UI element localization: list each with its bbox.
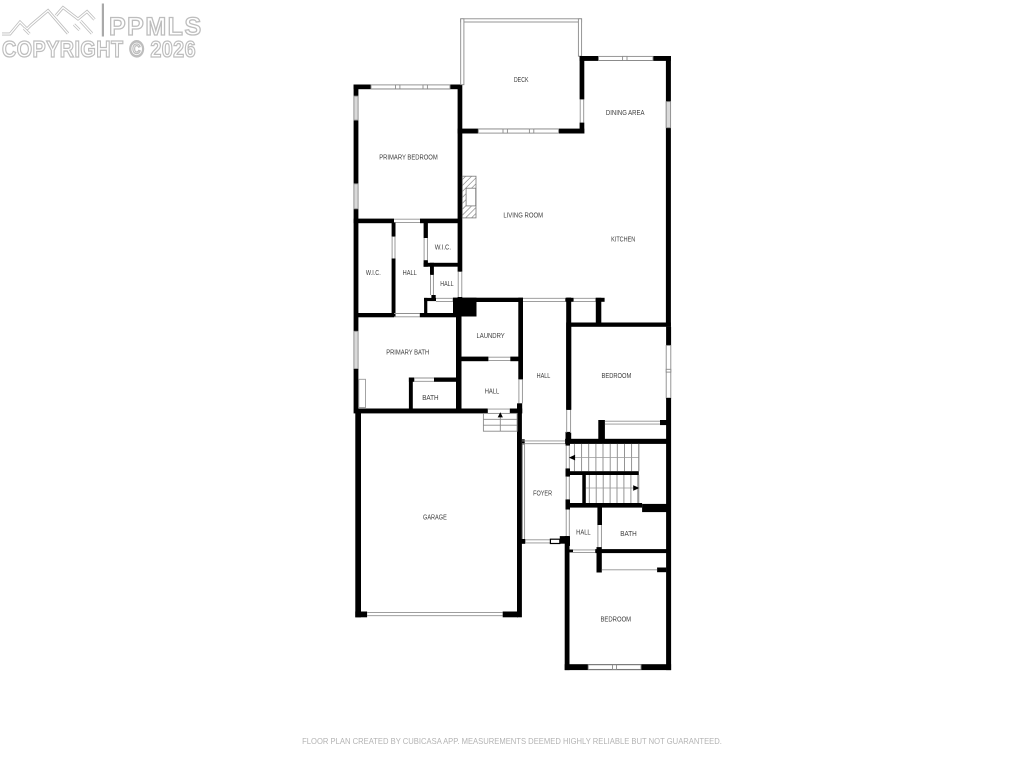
svg-text:HALL: HALL [576,530,591,537]
svg-text:BEDROOM: BEDROOM [602,373,632,380]
svg-text:HALL: HALL [440,281,453,288]
svg-text:HALL: HALL [485,389,500,396]
svg-text:FOYER: FOYER [533,491,552,498]
svg-text:LIVING ROOM: LIVING ROOM [503,213,543,220]
svg-text:W.I.C.: W.I.C. [435,245,451,252]
svg-text:GARAGE: GARAGE [423,514,447,521]
svg-text:KITCHEN: KITCHEN [611,237,635,244]
svg-text:PRIMARY BEDROOM: PRIMARY BEDROOM [379,155,438,162]
svg-text:HALL: HALL [537,373,551,380]
svg-text:HALL: HALL [403,270,417,277]
svg-text:PRIMARY BATH: PRIMARY BATH [386,350,429,357]
svg-text:LAUNDRY: LAUNDRY [476,333,505,340]
svg-text:DECK: DECK [514,77,529,84]
svg-text:BATH: BATH [620,531,637,538]
svg-text:DINING AREA: DINING AREA [606,110,645,117]
svg-text:BEDROOM: BEDROOM [600,617,631,624]
svg-text:BATH: BATH [422,395,438,402]
svg-text:W.I.C.: W.I.C. [366,270,381,277]
